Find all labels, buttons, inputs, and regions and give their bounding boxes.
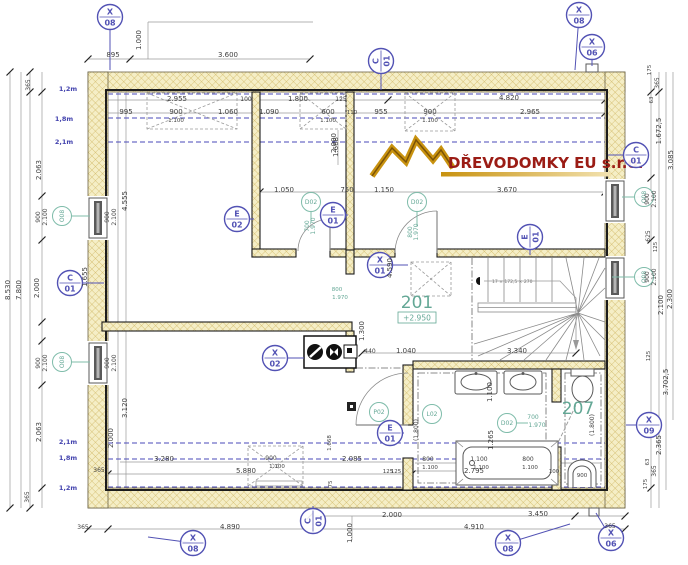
logo-underline bbox=[441, 172, 611, 177]
dim-label-14: 1.100 bbox=[320, 118, 336, 124]
svg-text:L02: L02 bbox=[427, 411, 438, 418]
dim-label-48: 1,8m bbox=[55, 115, 74, 123]
dim-label-35: 2.000 bbox=[330, 133, 338, 153]
dim-label-16: 955 bbox=[374, 108, 387, 116]
dim-label-5: 1.800 bbox=[288, 95, 308, 103]
section-marker-c01: C01 bbox=[301, 509, 326, 534]
svg-text:C: C bbox=[372, 58, 381, 64]
dim-label-22: 365 bbox=[654, 77, 661, 89]
dim-label-15: 110 bbox=[347, 110, 358, 116]
element-marker-l02: L02 bbox=[423, 405, 442, 424]
section-marker-e01: E01 bbox=[321, 203, 346, 228]
dim-label-74: 75 bbox=[328, 480, 334, 487]
dim-label-67: 3.340 bbox=[507, 347, 527, 355]
room-201-level: +2.950 bbox=[403, 314, 431, 323]
floor-plan-drawing: 17 × 172,5 × 270 bbox=[0, 0, 688, 565]
dim-label-88: 100 bbox=[549, 469, 560, 475]
dim-label-100: 125 bbox=[646, 350, 652, 361]
dim-label-68: 3.280 bbox=[154, 455, 174, 463]
flue-box bbox=[347, 402, 356, 411]
dim-label-92: 900 bbox=[644, 193, 651, 205]
svg-text:X: X bbox=[272, 349, 279, 358]
svg-text:06: 06 bbox=[605, 540, 617, 549]
svg-text:X: X bbox=[589, 38, 596, 47]
dim-label-84: 1.100 bbox=[470, 456, 487, 463]
dim-label-6: 125 bbox=[335, 96, 347, 103]
dim-label-94: 625 bbox=[645, 230, 652, 242]
dim-label-103: 63 bbox=[645, 458, 651, 465]
window-right-upper bbox=[603, 179, 627, 223]
section-marker-c01: C01 bbox=[369, 49, 394, 74]
dim-label-96: 900 bbox=[644, 271, 651, 283]
dim-label-77: 1.265 bbox=[487, 430, 495, 450]
dim-label-83: 1.100 bbox=[422, 465, 438, 471]
dim-label-3: 2.955 bbox=[167, 95, 187, 103]
stair-note: 17 × 172,5 × 270 bbox=[492, 279, 533, 285]
room-201-number: 201 bbox=[401, 293, 433, 313]
dim-label-27: 2.063 bbox=[35, 160, 43, 180]
svg-text:01: 01 bbox=[315, 515, 324, 527]
svg-text:E: E bbox=[521, 234, 530, 239]
dim-label-28: 900 bbox=[35, 211, 42, 223]
svg-text:X: X bbox=[107, 8, 114, 17]
svg-text:01: 01 bbox=[383, 55, 392, 67]
dim-label-46: 365 bbox=[93, 467, 105, 474]
dim-label-8: 995 bbox=[119, 108, 132, 116]
dim-label-69: 5.880 bbox=[236, 467, 256, 475]
svg-text:E: E bbox=[234, 210, 239, 219]
dim-label-81: (1.800) bbox=[589, 414, 596, 436]
dim-label-49: 2,1m bbox=[55, 138, 74, 146]
dim-label-11: 1.060 bbox=[218, 108, 238, 116]
dim-label-71: 1.100 bbox=[269, 464, 285, 470]
dim-label-47: 1,2m bbox=[59, 85, 78, 93]
svg-text:X: X bbox=[505, 534, 512, 543]
dim-label-29: 2.100 bbox=[42, 208, 49, 225]
dim-label-33: 1.655 bbox=[81, 267, 89, 287]
dim-label-82: 800 bbox=[422, 456, 434, 463]
svg-text:01: 01 bbox=[374, 267, 386, 276]
dim-label-98: 2.100 bbox=[657, 295, 665, 315]
svg-text:01: 01 bbox=[64, 285, 76, 294]
wardrobe-dashed bbox=[411, 262, 451, 296]
sink-2 bbox=[504, 371, 542, 394]
dim-label-2: 3.600 bbox=[218, 51, 238, 59]
svg-text:D02: D02 bbox=[501, 420, 513, 427]
interior-walls bbox=[102, 92, 605, 490]
svg-text:08: 08 bbox=[573, 17, 585, 26]
dim-label-54: 750 bbox=[340, 186, 353, 194]
section-marker-c01: C01 bbox=[58, 271, 83, 296]
dim-label-30: 900 bbox=[104, 211, 111, 223]
dim-label-34: 4.555 bbox=[121, 191, 129, 211]
svg-text:X: X bbox=[576, 6, 583, 15]
dim-label-80: (1.800) bbox=[413, 419, 420, 441]
svg-text:01: 01 bbox=[532, 231, 541, 243]
dim-label-90: 2.795 bbox=[464, 467, 484, 475]
dim-label-86: 800 bbox=[522, 456, 534, 463]
dim-label-18: 1.100 bbox=[422, 118, 438, 124]
dim-label-58: 1.970 bbox=[310, 217, 317, 234]
svg-text:02: 02 bbox=[231, 221, 242, 230]
svg-text:08: 08 bbox=[502, 545, 514, 554]
dim-label-75: 1.668 bbox=[327, 435, 333, 451]
dim-label-79: 1.970 bbox=[528, 422, 545, 429]
section-marker-x06: X06 bbox=[580, 35, 605, 60]
section-marker-e01: E01 bbox=[378, 421, 403, 446]
svg-text:08: 08 bbox=[187, 545, 199, 554]
svg-text:02: 02 bbox=[269, 360, 280, 369]
section-marker-c01: C01 bbox=[624, 143, 649, 168]
dim-label-52: 1,2m bbox=[59, 484, 78, 492]
dim-label-50: 2,1m bbox=[59, 438, 78, 446]
svg-text:01: 01 bbox=[327, 217, 339, 226]
dim-label-51: 1,8m bbox=[59, 454, 78, 462]
company-logo: DŘEVODOMKY EU s.r.o. bbox=[372, 140, 643, 177]
dim-label-107: 2.000 bbox=[382, 511, 402, 519]
svg-text:X: X bbox=[377, 256, 384, 265]
dim-label-0: 895 bbox=[106, 51, 119, 59]
floor-plan-page: 17 × 172,5 × 270 bbox=[0, 0, 688, 565]
dim-label-19: 2.965 bbox=[520, 108, 540, 116]
svg-text:C: C bbox=[67, 274, 73, 283]
dim-label-91: 125 bbox=[383, 469, 394, 475]
dim-label-97: 2.100 bbox=[651, 268, 658, 285]
section-marker-e02: E02 bbox=[225, 207, 250, 232]
svg-text:D02: D02 bbox=[305, 199, 317, 206]
dim-label-111: 365 bbox=[77, 524, 89, 531]
dim-label-66: 1.040 bbox=[396, 347, 416, 355]
dim-label-104: 365 bbox=[651, 465, 658, 477]
dim-label-56: 3.670 bbox=[497, 186, 517, 194]
element-marker-o08: O08 bbox=[53, 207, 72, 226]
svg-text:C: C bbox=[633, 146, 639, 155]
dim-label-70: 900 bbox=[265, 455, 277, 462]
svg-text:06: 06 bbox=[586, 49, 598, 58]
dim-label-110: 4.910 bbox=[464, 523, 484, 531]
svg-text:P02: P02 bbox=[373, 409, 384, 416]
dim-label-1: 1.000 bbox=[135, 30, 143, 50]
dim-label-10: 1.100 bbox=[168, 118, 184, 124]
dim-label-7: 4.820 bbox=[499, 94, 519, 102]
svg-text:E: E bbox=[330, 206, 335, 215]
dim-label-55: 1.150 bbox=[374, 186, 394, 194]
window-right-lower bbox=[603, 256, 627, 300]
dim-label-13: 600 bbox=[321, 108, 334, 116]
toilet bbox=[571, 369, 594, 402]
section-marker-x09: X09 bbox=[637, 413, 662, 438]
section-marker-x08: X08 bbox=[567, 3, 592, 28]
dim-label-40: 2.100 bbox=[42, 354, 49, 371]
dim-label-87: 1.100 bbox=[522, 465, 538, 471]
dim-label-78: 700 bbox=[527, 414, 539, 421]
element-marker-d02: D02 bbox=[498, 414, 517, 433]
dim-label-4: 100 bbox=[240, 96, 252, 103]
dim-label-38: 2.063 bbox=[35, 422, 43, 442]
svg-text:08: 08 bbox=[104, 19, 116, 28]
svg-text:C: C bbox=[304, 518, 313, 524]
dim-label-101: 3.702,5 bbox=[662, 369, 670, 396]
dim-label-9: 900 bbox=[169, 108, 182, 116]
dim-label-53: 1.050 bbox=[274, 186, 294, 194]
dim-label-23: 63 bbox=[649, 96, 655, 103]
dim-label-42: 2.100 bbox=[111, 354, 118, 371]
dim-label-45: 2.000 bbox=[107, 428, 115, 448]
dim-label-24: 1.672,5 bbox=[655, 118, 663, 145]
dim-label-105: 175 bbox=[643, 478, 649, 489]
dim-label-76: 1.100 bbox=[486, 382, 494, 402]
technical-box bbox=[304, 336, 357, 368]
dim-label-32: 2.000 bbox=[33, 278, 41, 298]
section-marker-x08: X08 bbox=[98, 5, 123, 30]
dim-label-41: 900 bbox=[104, 357, 111, 369]
dim-label-61: 4.590 bbox=[386, 258, 394, 278]
dim-label-25: 3.085 bbox=[667, 150, 675, 170]
section-marker-x08: X08 bbox=[496, 531, 521, 556]
dim-label-62: 1.300 bbox=[358, 321, 366, 341]
dim-label-37: 7.800 bbox=[15, 280, 23, 300]
dim-label-12: 1.090 bbox=[259, 108, 279, 116]
svg-text:X: X bbox=[646, 416, 653, 425]
dim-label-43: 365 bbox=[24, 491, 31, 503]
dim-label-31: 2.100 bbox=[111, 208, 118, 225]
dim-label-17: 900 bbox=[423, 108, 436, 116]
dim-label-102: 2.365 bbox=[655, 435, 663, 455]
element-marker-p02: P02 bbox=[370, 403, 389, 422]
dim-label-108: 3.450 bbox=[528, 510, 548, 518]
dim-label-106: 365 bbox=[604, 523, 616, 530]
dim-label-95: 125 bbox=[653, 241, 659, 252]
fixtures bbox=[304, 336, 596, 487]
dim-label-60: 1.970 bbox=[413, 223, 420, 240]
svg-text:01: 01 bbox=[384, 435, 396, 444]
dim-label-36: 8.530 bbox=[4, 280, 12, 300]
staircase: 17 × 172,5 × 270 bbox=[474, 258, 605, 360]
bathtub bbox=[456, 441, 558, 485]
logo-company-name: DŘEVODOMKY EU s.r.o. bbox=[448, 153, 643, 172]
section-marker-x02: X02 bbox=[263, 346, 288, 371]
section-marker-x08: X08 bbox=[181, 531, 206, 556]
svg-text:O08: O08 bbox=[59, 356, 66, 369]
dim-label-39: 900 bbox=[35, 357, 42, 369]
section-marker-e01: E01 bbox=[518, 225, 543, 250]
dim-label-112: 1.000 bbox=[346, 523, 354, 543]
element-marker-d02: D02 bbox=[408, 193, 427, 212]
dim-label-21: 175 bbox=[647, 64, 653, 75]
dim-label-93: 2.100 bbox=[651, 190, 658, 207]
dim-label-72: 2.085 bbox=[342, 455, 362, 463]
dim-label-64: 1.970 bbox=[332, 295, 348, 301]
svg-text:01: 01 bbox=[630, 157, 642, 166]
svg-text:D02: D02 bbox=[411, 199, 423, 206]
element-marker-o08: O08 bbox=[53, 353, 72, 372]
dim-label-44: 3.120 bbox=[121, 398, 129, 418]
svg-text:O08: O08 bbox=[59, 210, 66, 223]
dim-label-109: 4.890 bbox=[220, 523, 240, 531]
element-marker-d02: D02 bbox=[302, 193, 321, 212]
svg-text:X: X bbox=[190, 534, 197, 543]
svg-text:09: 09 bbox=[643, 427, 655, 436]
dim-label-89: 900 bbox=[577, 473, 588, 479]
svg-text:E: E bbox=[387, 424, 392, 433]
dim-label-26: 365 bbox=[25, 79, 32, 91]
dim-label-65: 440 bbox=[364, 348, 376, 355]
dim-label-99: 2.300 bbox=[666, 289, 674, 309]
dim-label-63: 800 bbox=[332, 287, 343, 293]
